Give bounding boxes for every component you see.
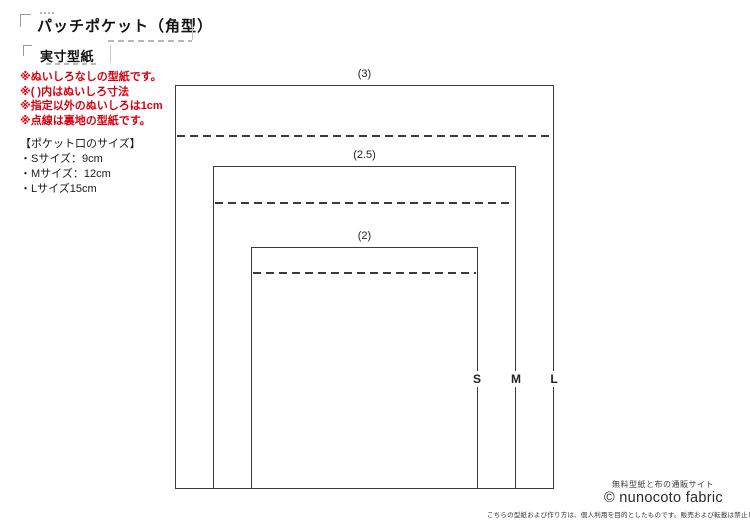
pattern-sheet-page: パッチポケット（角型） 実寸型紙 ※ぬいしろなしの型紙です。 ※( )内はぬいし…: [0, 0, 750, 530]
title-dotted-print-mark: [40, 12, 54, 14]
seam-allowance-value-m: (2.5): [213, 149, 516, 161]
subtitle-dashed-underline: [46, 63, 98, 65]
size-list-heading: 【ポケット口のサイズ】: [20, 137, 141, 152]
seam-allowance-value-l: (3): [175, 68, 554, 80]
note-line: ※指定以外のぬいしろは1cm: [20, 99, 163, 114]
title-end-print-mark: [192, 18, 193, 40]
pattern-piece-outline-s: [251, 247, 478, 489]
title-dashed-underline: [108, 40, 192, 42]
seam-allowance-value-s: (2): [251, 230, 478, 242]
seam-allowance-notes: ※ぬいしろなしの型紙です。 ※( )内はぬいしろ寸法 ※指定以外のぬいしろは1c…: [20, 70, 163, 128]
site-tagline: 無料型紙と布の通販サイト: [612, 479, 714, 490]
title-corner-print-mark: [20, 14, 31, 27]
subtitle-end-print-mark: [110, 46, 111, 63]
subtitle-corner-print-mark: [23, 45, 32, 56]
size-marker-l: L: [548, 371, 559, 387]
size-list-item-s: ・Sサイズ：9cm: [20, 152, 141, 167]
size-list-item-l: ・Lサイズ15cm: [20, 182, 141, 197]
note-line: ※点線は裏地の型紙です。: [20, 114, 163, 129]
brand-copyright: © nunocoto fabric: [604, 490, 723, 506]
note-line: ※ぬいしろなしの型紙です。: [20, 70, 163, 85]
size-marker-s: S: [471, 371, 483, 387]
pocket-opening-size-list: 【ポケット口のサイズ】 ・Sサイズ：9cm ・Mサイズ：12cm ・Lサイズ15…: [20, 137, 141, 197]
page-title: パッチポケット（角型）: [37, 15, 213, 36]
note-line: ※( )内はぬいしろ寸法: [20, 85, 163, 100]
lining-dashed-line-l: [177, 135, 552, 137]
size-marker-m: M: [509, 371, 523, 387]
lining-dashed-line-m: [215, 202, 514, 204]
lining-dashed-line-s: [253, 272, 476, 274]
usage-disclaimer: こちらの型紙および作り方は、個人利用を目的としたものです。販売および転載は禁止し…: [487, 509, 750, 519]
size-list-item-m: ・Mサイズ：12cm: [20, 167, 141, 182]
